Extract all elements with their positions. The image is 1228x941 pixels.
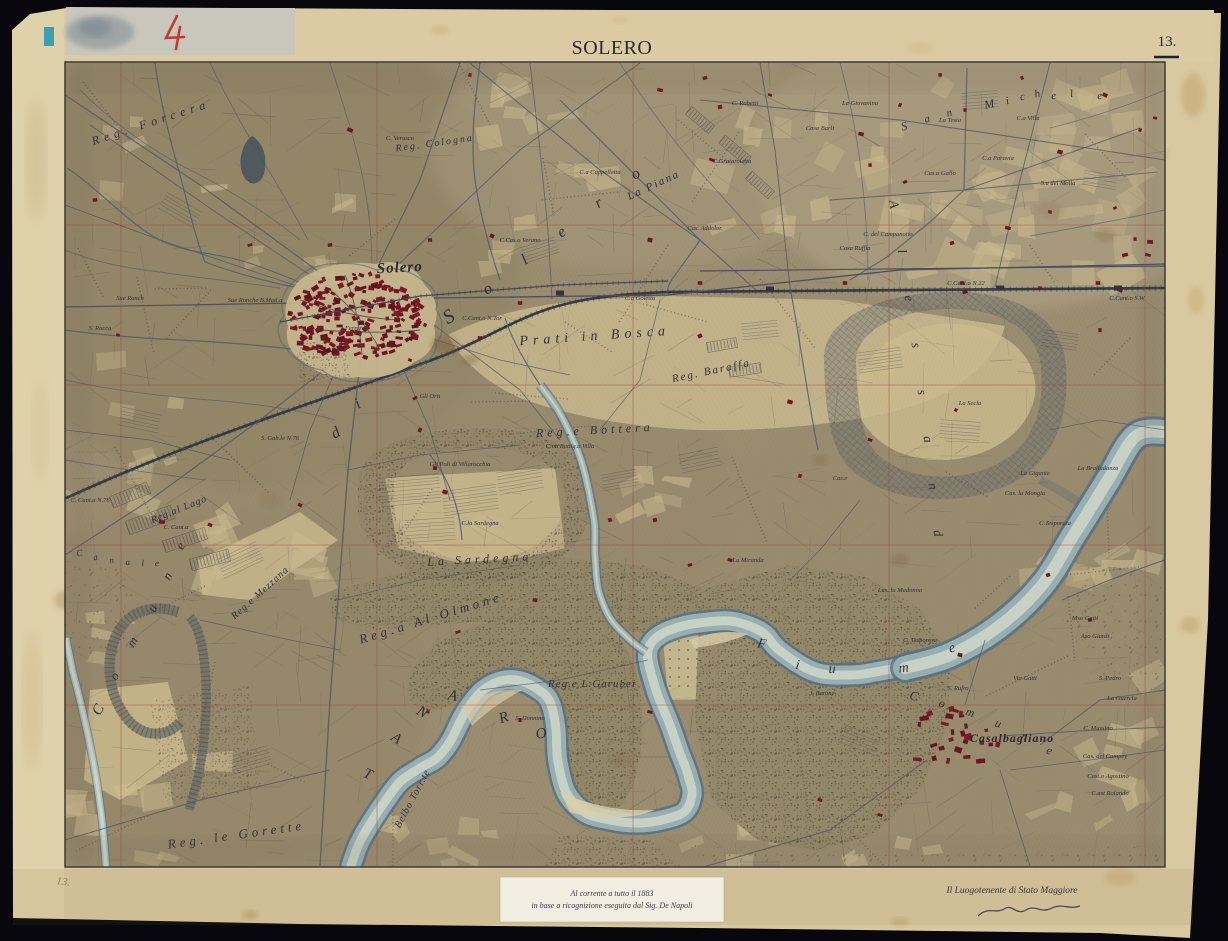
svg-text:13.: 13.: [56, 875, 71, 889]
svg-text:SOLERO: SOLERO: [572, 37, 653, 59]
svg-text:Il Luogotenente di Stato Maggi: Il Luogotenente di Stato Maggiore: [945, 886, 1077, 896]
svg-text:Al corrente a tutto il 1883: Al corrente a tutto il 1883: [569, 889, 653, 898]
svg-text:in base a ricognizione eseguit: in base a ricognizione eseguita dal Sig.…: [531, 901, 692, 910]
svg-text:13.: 13.: [1158, 34, 1177, 50]
